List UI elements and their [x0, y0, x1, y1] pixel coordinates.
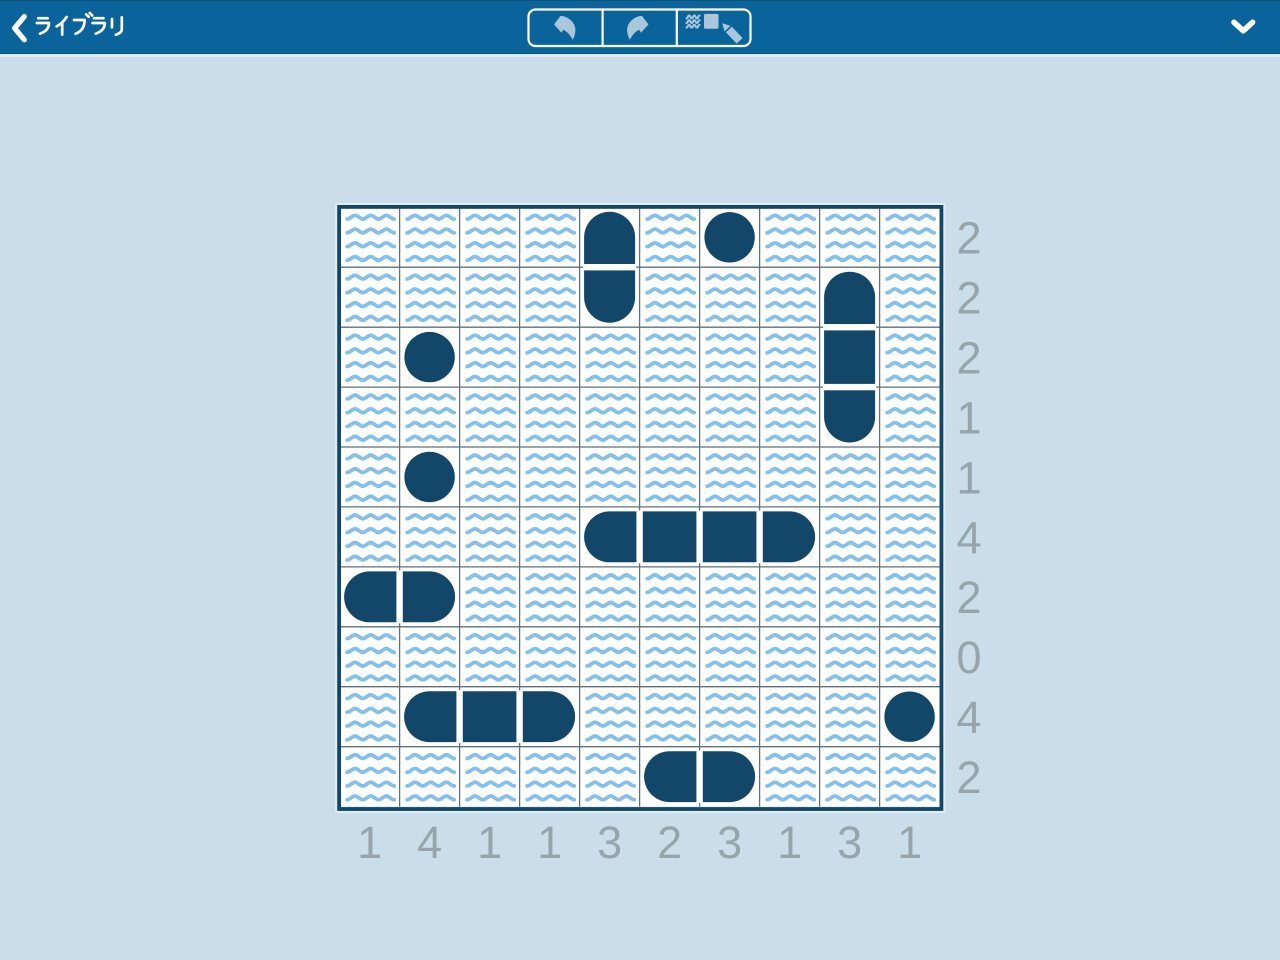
svg-text:3: 3 [837, 817, 862, 868]
svg-text:2: 2 [657, 817, 682, 868]
svg-text:2: 2 [956, 752, 981, 803]
svg-text:1: 1 [777, 817, 802, 868]
svg-text:1: 1 [357, 817, 382, 868]
svg-text:2: 2 [956, 333, 981, 384]
svg-text:0: 0 [956, 632, 981, 683]
svg-text:4: 4 [956, 692, 981, 743]
svg-text:1: 1 [477, 817, 502, 868]
svg-text:3: 3 [717, 817, 742, 868]
svg-text:2: 2 [956, 273, 981, 324]
svg-text:1: 1 [956, 393, 981, 444]
svg-text:1: 1 [537, 817, 562, 868]
svg-text:4: 4 [956, 512, 981, 563]
svg-text:2: 2 [956, 572, 981, 623]
svg-text:1: 1 [956, 452, 981, 503]
svg-text:1: 1 [897, 817, 922, 868]
svg-text:3: 3 [597, 817, 622, 868]
svg-text:2: 2 [956, 213, 981, 264]
svg-text:4: 4 [417, 817, 442, 868]
